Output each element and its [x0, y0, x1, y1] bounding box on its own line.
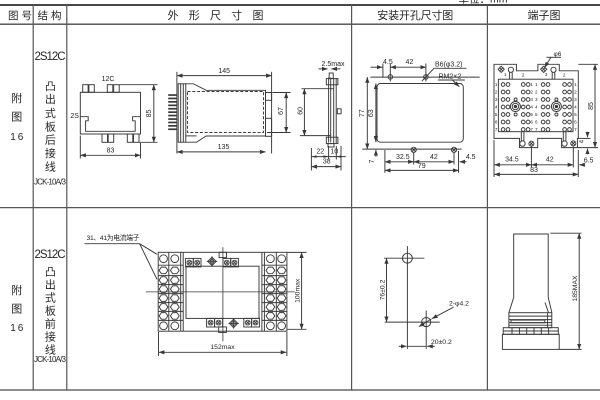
svg-text:B6(φ3.2): B6(φ3.2): [435, 62, 463, 69]
svg-text:式: 式: [45, 292, 56, 305]
svg-text:5: 5: [574, 112, 577, 117]
svg-text:16: 16: [10, 132, 23, 143]
svg-text:4.5: 4.5: [466, 154, 476, 161]
svg-text:外 形 尺 寸 图: 外 形 尺 寸 图: [168, 8, 264, 22]
svg-text:6: 6: [495, 120, 498, 125]
svg-text:6: 6: [574, 120, 577, 125]
svg-text:JCK-10A/3: JCK-10A/3: [34, 355, 67, 364]
svg-text:7: 7: [369, 159, 376, 163]
svg-text:67: 67: [278, 107, 285, 115]
svg-text:3: 3: [495, 97, 498, 102]
svg-text:60: 60: [297, 107, 304, 115]
svg-text:φ6: φ6: [554, 51, 562, 58]
svg-text:20±0.2: 20±0.2: [431, 339, 452, 346]
svg-text:7: 7: [574, 127, 577, 132]
svg-text:77: 77: [359, 109, 366, 117]
svg-text:1: 1: [530, 82, 533, 87]
svg-text:出: 出: [45, 278, 56, 292]
svg-text:2: 2: [530, 90, 533, 95]
svg-text:式: 式: [45, 107, 56, 120]
svg-text:2S12C: 2S12C: [35, 249, 66, 261]
svg-text:100max: 100max: [294, 278, 301, 303]
svg-text:2: 2: [535, 90, 538, 95]
svg-text:5: 5: [535, 112, 538, 117]
svg-text:4: 4: [495, 105, 498, 110]
svg-text:前: 前: [45, 317, 56, 331]
svg-text:2.5max: 2.5max: [322, 61, 345, 68]
svg-text:135: 135: [218, 144, 230, 151]
svg-text:1: 1: [504, 72, 507, 77]
svg-text:1: 1: [574, 82, 577, 87]
svg-text:RM2×2: RM2×2: [439, 73, 462, 80]
svg-text:42: 42: [546, 157, 554, 164]
svg-text:4.5: 4.5: [383, 59, 393, 66]
svg-text:附: 附: [11, 91, 22, 105]
svg-text:31、41为电流端子: 31、41为电流端子: [87, 233, 140, 242]
svg-text:4: 4: [530, 105, 533, 110]
svg-text:板: 板: [45, 119, 56, 133]
svg-text:6: 6: [535, 120, 538, 125]
svg-text:接: 接: [45, 147, 56, 160]
svg-text:42: 42: [406, 59, 414, 66]
svg-text:34.5: 34.5: [505, 157, 519, 164]
svg-text:结 构: 结 构: [38, 9, 62, 22]
svg-text:83: 83: [107, 147, 115, 154]
svg-text:145: 145: [218, 68, 230, 75]
svg-text:凸: 凸: [45, 267, 56, 279]
svg-text:83: 83: [530, 167, 538, 174]
svg-text:185MAX: 185MAX: [572, 275, 579, 302]
svg-text:6: 6: [530, 120, 533, 125]
svg-text:152max: 152max: [210, 344, 235, 351]
svg-text:端子图: 端子图: [528, 9, 561, 22]
svg-text:76±0.2: 76±0.2: [379, 279, 386, 300]
svg-text:32.5: 32.5: [396, 154, 410, 161]
svg-text:38: 38: [323, 159, 331, 166]
svg-text:图 号: 图 号: [8, 10, 32, 22]
svg-text:1: 1: [495, 82, 498, 87]
svg-text:2: 2: [563, 73, 566, 78]
svg-text:图: 图: [11, 111, 22, 124]
svg-text:单位：mm: 单位：mm: [459, 0, 508, 6]
svg-text:接: 接: [45, 331, 56, 344]
svg-text:16: 16: [10, 323, 23, 334]
svg-text:3: 3: [535, 97, 538, 102]
svg-text:2: 2: [522, 73, 525, 78]
svg-text:7: 7: [495, 127, 498, 132]
svg-text:63: 63: [368, 109, 375, 117]
svg-text:12C: 12C: [102, 76, 115, 83]
svg-text:2S: 2S: [70, 113, 79, 120]
svg-text:2-φ4.2: 2-φ4.2: [449, 301, 469, 308]
svg-text:JCK-10A/3: JCK-10A/3: [34, 178, 67, 187]
svg-text:85: 85: [146, 110, 153, 118]
svg-text:4: 4: [535, 105, 538, 110]
svg-text:22: 22: [316, 149, 324, 156]
svg-text:79: 79: [418, 163, 426, 170]
svg-text:4: 4: [574, 105, 577, 110]
svg-text:后: 后: [45, 134, 56, 147]
svg-text:5: 5: [530, 112, 533, 117]
svg-text:2S12C: 2S12C: [35, 51, 66, 63]
svg-text:安装开孔尺寸图: 安装开孔尺寸图: [377, 8, 453, 22]
svg-text:图: 图: [11, 303, 22, 316]
svg-text:42: 42: [430, 154, 438, 161]
svg-text:3: 3: [530, 97, 533, 102]
svg-text:3: 3: [545, 72, 548, 77]
svg-text:2: 2: [495, 90, 498, 95]
svg-text:2: 2: [574, 90, 577, 95]
svg-text:5: 5: [495, 112, 498, 117]
svg-text:附: 附: [11, 283, 22, 297]
svg-text:板: 板: [45, 304, 56, 318]
svg-text:6.5: 6.5: [584, 157, 594, 164]
svg-text:凸: 凸: [45, 81, 56, 93]
svg-text:10: 10: [330, 149, 338, 156]
svg-text:4: 4: [578, 139, 585, 143]
svg-text:线: 线: [45, 159, 56, 173]
svg-text:出: 出: [45, 92, 56, 106]
svg-text:1: 1: [535, 82, 538, 87]
svg-text:7: 7: [530, 127, 533, 132]
svg-text:3: 3: [574, 97, 577, 102]
svg-text:7: 7: [535, 127, 538, 132]
svg-text:85: 85: [588, 102, 595, 110]
